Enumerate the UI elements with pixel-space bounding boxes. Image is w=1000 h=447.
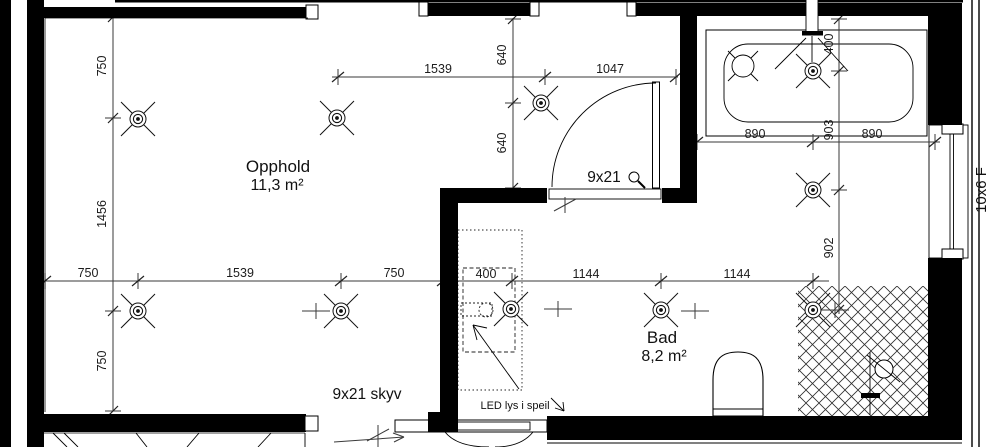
door-jamb-stub xyxy=(662,188,680,203)
dim-label: 1047 xyxy=(596,62,624,76)
dim-label: 400 xyxy=(822,34,836,55)
dim-label: 903 xyxy=(822,120,836,141)
dim-line-top-horizontal xyxy=(332,69,682,85)
wall-end-cap xyxy=(530,2,539,16)
sliding-door-label: 9x21 skyv xyxy=(333,386,402,403)
bottom-wall-left xyxy=(35,414,306,432)
ceiling-light-symbol xyxy=(796,173,830,207)
top-wall-left xyxy=(44,7,308,18)
dim-label: 1144 xyxy=(724,267,751,281)
furniture-outline xyxy=(53,433,305,447)
right-wall-upper xyxy=(928,7,962,125)
window-label: 10x6 F xyxy=(973,167,990,213)
room-label-bad: Bad xyxy=(647,328,677,347)
door-handle-icon xyxy=(629,172,645,188)
top-wall-middle xyxy=(426,3,531,16)
dim-label: 1539 xyxy=(424,62,452,76)
dim-label: 1144 xyxy=(573,267,600,281)
dim-label: 750 xyxy=(95,351,109,372)
slider-pocket-stub xyxy=(428,412,458,432)
swing-door-symbol xyxy=(549,82,661,213)
bath-left-wall xyxy=(680,14,697,203)
dim-label: 902 xyxy=(822,238,836,259)
wall-end-cap xyxy=(305,416,318,431)
ceiling-light-symbol xyxy=(494,292,528,326)
bathtub-symbol xyxy=(706,30,927,136)
wall-end-cap xyxy=(306,5,318,19)
floor-plan-drawing: Opphold 11,3 m² Bad 8,2 m² 9x21 9x21 sky… xyxy=(0,0,1000,447)
ceiling-light-symbol xyxy=(644,293,678,327)
room-area-bad: 8,2 m² xyxy=(641,348,687,365)
light-position-ticks xyxy=(302,301,849,319)
floor-plan-page: Opphold 11,3 m² Bad 8,2 m² 9x21 9x21 sky… xyxy=(0,0,1000,447)
dim-label: 1539 xyxy=(226,266,254,280)
dim-label: 750 xyxy=(95,56,109,77)
dim-label: 750 xyxy=(78,266,99,280)
dim-line-hall-vertical xyxy=(505,14,521,193)
room-label-opphold: Opphold xyxy=(246,157,310,176)
wall-end-cap xyxy=(419,2,428,16)
ceiling-light-symbol xyxy=(524,86,558,120)
dim-label: 750 xyxy=(384,266,405,280)
wall-end-cap xyxy=(627,2,636,16)
mid-wall-vertical xyxy=(440,188,458,412)
dim-line-main-horizontal xyxy=(39,273,829,289)
dim-label: 640 xyxy=(495,45,509,66)
dim-label: 640 xyxy=(495,133,509,154)
bottom-wall-right xyxy=(547,416,962,440)
dim-label: 400 xyxy=(476,267,497,281)
dim-label: 1456 xyxy=(95,200,109,228)
ceiling-light-symbol xyxy=(121,294,155,328)
dim-label: 890 xyxy=(745,127,766,141)
exterior-wall-left-inner xyxy=(27,0,44,447)
bath-faucet-icon xyxy=(728,51,758,81)
room-area-opphold: 11,3 m² xyxy=(250,177,304,194)
swing-door-label: 9x21 xyxy=(587,169,621,186)
mirror-note-label: LED lys i speil xyxy=(480,400,549,412)
right-wall-lower xyxy=(928,258,962,431)
ceiling-light-symbol xyxy=(320,101,354,135)
mirror-note-arrow xyxy=(473,325,564,411)
toilet-symbol xyxy=(713,352,763,416)
exterior-wall-left-outer xyxy=(0,0,11,447)
dim-label: 890 xyxy=(862,127,883,141)
ceiling-light-symbol xyxy=(121,102,155,136)
